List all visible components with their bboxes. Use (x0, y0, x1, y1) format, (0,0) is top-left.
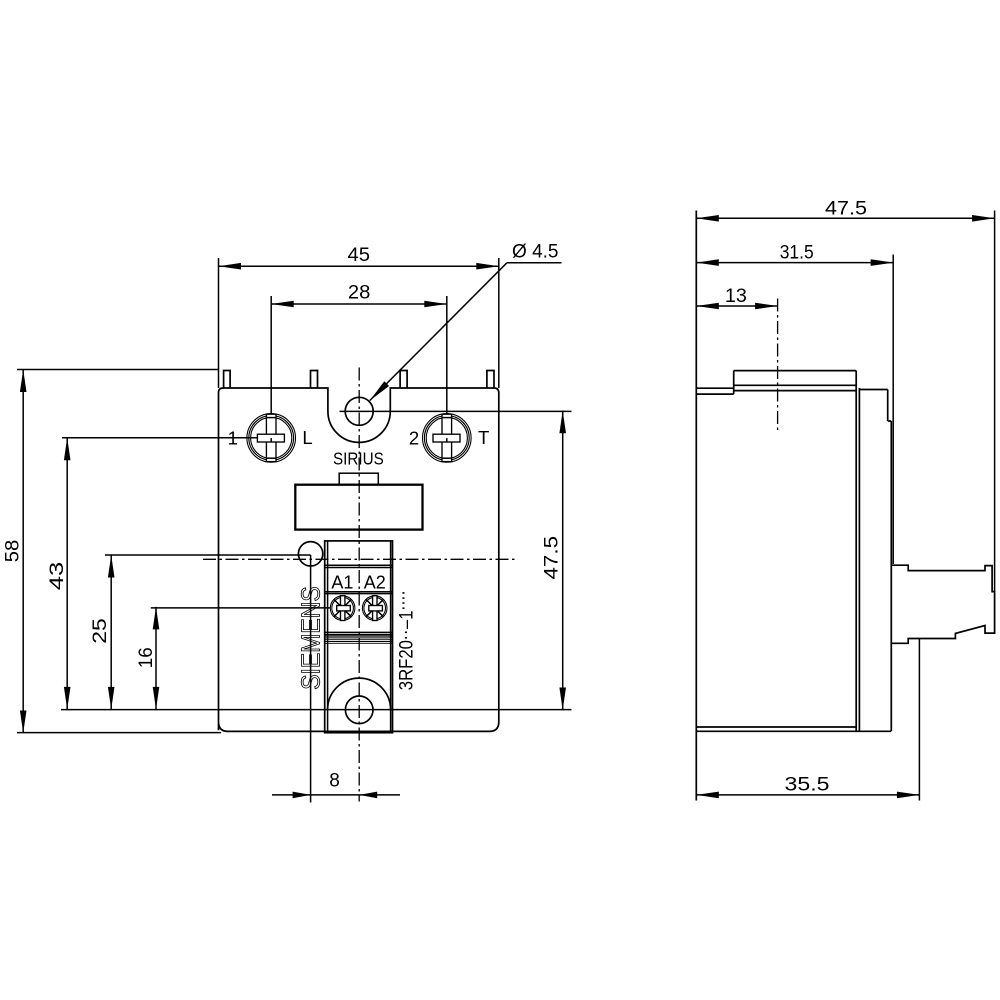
svg-text:SIEMENS: SIEMENS (297, 586, 325, 690)
svg-text:35.5: 35.5 (785, 775, 830, 796)
svg-text:T: T (478, 427, 489, 448)
svg-text:L: L (302, 427, 312, 448)
svg-text:58: 58 (3, 540, 24, 563)
svg-text:45: 45 (348, 245, 371, 266)
svg-text:13: 13 (725, 286, 747, 307)
svg-text:43: 43 (47, 562, 68, 591)
svg-text:2: 2 (409, 427, 419, 448)
svg-text:31.5: 31.5 (780, 242, 814, 263)
svg-text:A1: A1 (331, 572, 353, 592)
svg-text:28: 28 (348, 283, 371, 304)
svg-text:25: 25 (90, 618, 111, 644)
svg-text:47.5: 47.5 (825, 198, 867, 219)
svg-text:Ø 4.5: Ø 4.5 (512, 241, 559, 262)
svg-text:8: 8 (329, 771, 340, 792)
svg-text:47.5: 47.5 (542, 536, 563, 580)
svg-text:16: 16 (136, 647, 157, 668)
svg-text:SIRIUS: SIRIUS (333, 448, 384, 468)
svg-text:A2: A2 (364, 572, 386, 592)
